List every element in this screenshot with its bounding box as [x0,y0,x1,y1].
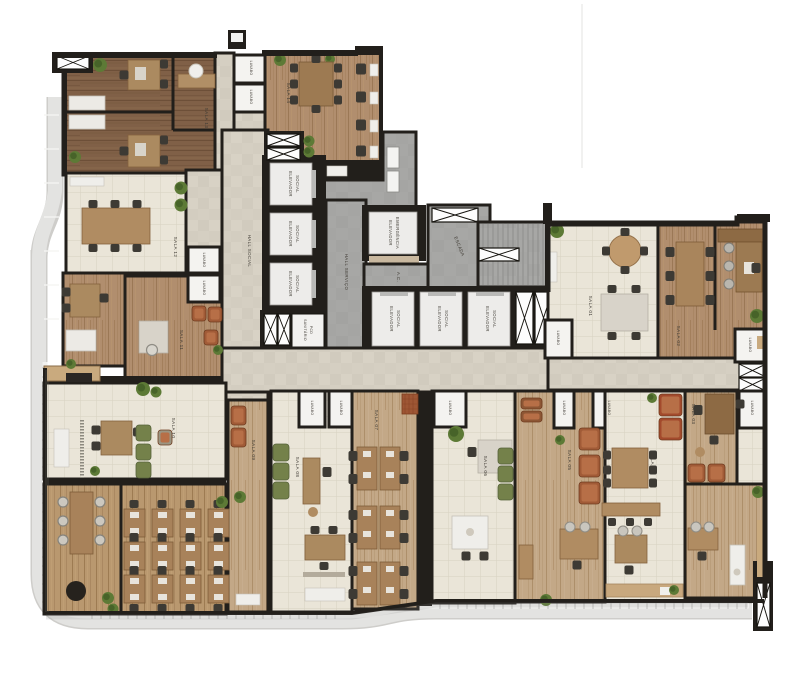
svg-text:LAVABO: LAVABO [249,90,253,105]
svg-text:LAVABO: LAVABO [556,331,560,346]
svg-text:SANITÁRIO: SANITÁRIO [303,319,307,341]
svg-text:ELEVADOR: ELEVADOR [389,306,394,332]
svg-text:LAVABO: LAVABO [339,401,343,416]
svg-text:HALL SERVIÇO: HALL SERVIÇO [344,254,349,291]
svg-text:SALA 03: SALA 03 [691,404,696,425]
svg-text:HALL SOCIAL: HALL SOCIAL [247,235,252,268]
svg-text:SALA 12: SALA 12 [173,237,178,258]
svg-text:SOCIAL: SOCIAL [295,275,300,293]
svg-text:SALA 11: SALA 11 [179,330,184,350]
svg-text:SOCIAL: SOCIAL [295,175,300,193]
svg-text:SOCIAL: SOCIAL [444,310,449,328]
svg-text:ELEVADOR: ELEVADOR [288,171,293,197]
svg-text:ELEVADOR: ELEVADOR [437,306,442,332]
svg-text:LAVABO: LAVABO [748,338,752,353]
svg-text:EMERGÊNCIA: EMERGÊNCIA [395,217,400,249]
svg-text:LAVABO: LAVABO [310,401,314,416]
svg-text:LAVABO: LAVABO [202,253,206,268]
svg-text:SALA 07: SALA 07 [374,410,379,431]
svg-text:SALA 14: SALA 14 [286,83,291,104]
svg-text:SALA 06: SALA 06 [483,456,488,477]
svg-text:LAVABO: LAVABO [607,401,611,416]
svg-text:SALA 04: SALA 04 [650,452,655,473]
svg-text:SALA 09: SALA 09 [251,440,256,461]
svg-text:LAVABO: LAVABO [249,61,253,76]
svg-text:ELEVADOR: ELEVADOR [388,220,393,246]
svg-text:LAVABO: LAVABO [750,401,754,416]
svg-text:LAVABO: LAVABO [202,281,206,296]
svg-text:A.C.: A.C. [396,272,401,282]
svg-text:LAVABO: LAVABO [562,401,566,416]
svg-text:ELEVADOR: ELEVADOR [485,306,490,332]
svg-text:SOCIAL: SOCIAL [295,225,300,243]
svg-text:SALA 13: SALA 13 [204,108,209,129]
svg-text:SALA 10: SALA 10 [171,418,176,439]
svg-text:SOCIAL: SOCIAL [492,310,497,328]
svg-text:PCD: PCD [309,326,313,335]
svg-text:SALA 01: SALA 01 [588,296,593,317]
svg-text:ELEVADOR: ELEVADOR [288,271,293,297]
svg-text:SALA 02: SALA 02 [676,326,681,347]
svg-text:ELEVADOR: ELEVADOR [288,221,293,247]
svg-text:SALA 08: SALA 08 [295,457,300,478]
svg-text:SALA 05: SALA 05 [567,450,572,471]
svg-text:SOCIAL: SOCIAL [396,310,401,328]
svg-text:LAVABO: LAVABO [448,401,452,416]
